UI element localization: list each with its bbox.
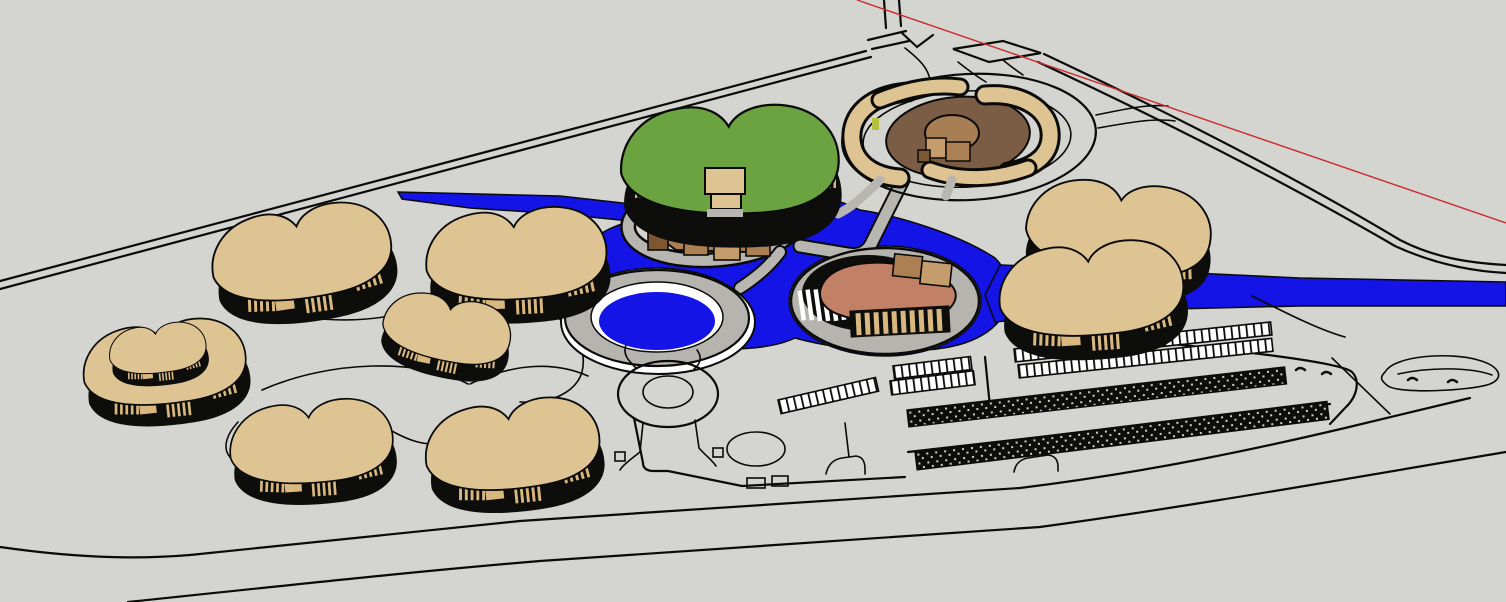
compound-path bbox=[946, 180, 952, 196]
entrance-step bbox=[707, 209, 743, 217]
dome-annex-boxes bbox=[918, 138, 970, 162]
island-building bbox=[791, 248, 979, 354]
island-tan-colonnade bbox=[849, 305, 950, 337]
model-viewport[interactable] bbox=[0, 0, 1506, 602]
entrance-lower bbox=[711, 194, 741, 209]
pool-water bbox=[599, 292, 715, 350]
entrance-upper bbox=[705, 168, 745, 194]
green-roof-building bbox=[621, 105, 842, 248]
kidney-building-8 bbox=[996, 236, 1191, 366]
kidney-building-5 bbox=[227, 395, 400, 510]
scene-canvas bbox=[0, 0, 1506, 602]
courtyard-accent bbox=[872, 118, 879, 130]
